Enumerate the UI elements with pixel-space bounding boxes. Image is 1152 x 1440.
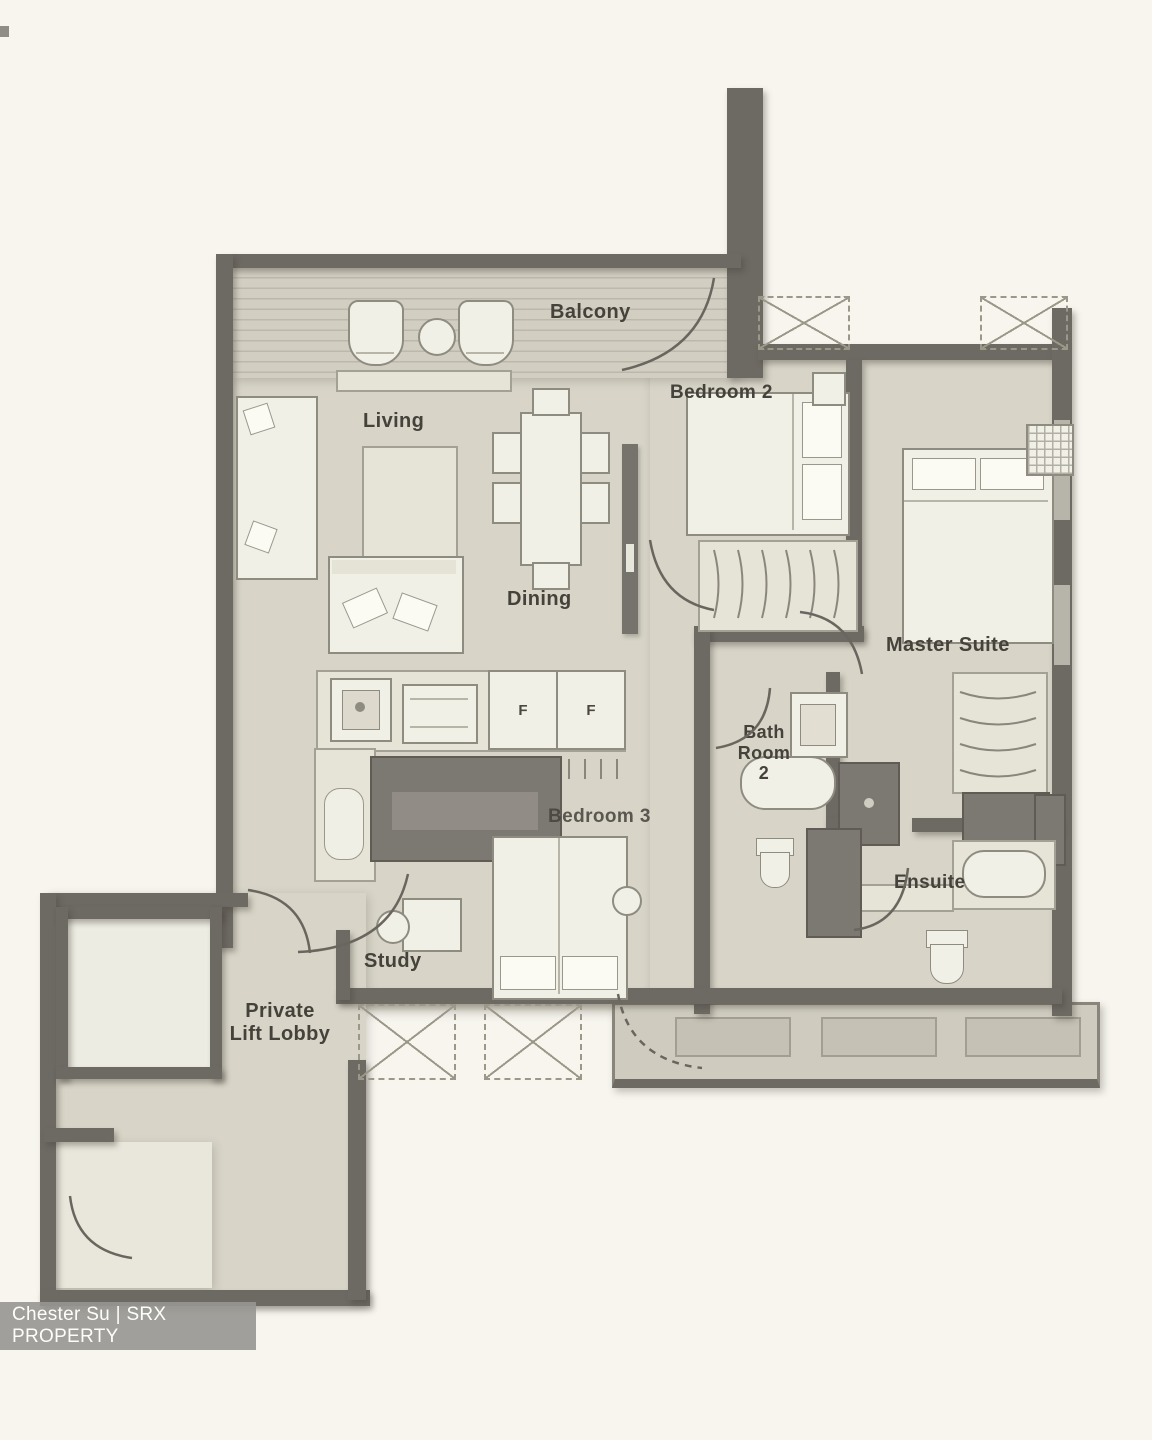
bath2-toilet	[756, 838, 794, 888]
wall-study-left	[336, 930, 350, 1000]
bedroom2-bed	[686, 392, 850, 536]
study-desk	[402, 898, 462, 952]
sofa-cushion	[392, 592, 437, 631]
bed-pillow	[912, 458, 976, 490]
toilet-bowl	[760, 852, 790, 888]
bed-pillow	[802, 402, 842, 458]
bedroom2-nightstand	[812, 372, 846, 406]
window-hatch-top-2	[980, 296, 1068, 350]
floor-lower-room	[56, 1142, 212, 1288]
watermark-text: Chester Su | SRX PROPERTY	[12, 1304, 256, 1348]
wall-fin-dining	[622, 444, 638, 634]
kitchen-sink	[330, 678, 392, 742]
sofa	[328, 556, 464, 654]
balcony-chair-1	[348, 300, 404, 366]
bed-pillow	[500, 956, 556, 990]
sink-tap	[355, 702, 365, 712]
bed-pillow	[802, 464, 842, 520]
bedroom3-lamp	[612, 886, 642, 916]
wall-left	[216, 254, 233, 948]
vanity-basin	[800, 704, 836, 746]
print-artifact	[0, 26, 9, 37]
fridge-label: F	[490, 672, 556, 748]
wall-lift-shaft-right	[210, 907, 222, 1079]
dining-chair-right-1	[580, 432, 610, 474]
window-hatch-bottom-2	[484, 1004, 582, 1080]
label-ensuite: Ensuite	[894, 872, 965, 894]
watermark-bar: Chester Su | SRX PROPERTY	[0, 1302, 256, 1350]
label-private-lift-lobby: Private Lift Lobby	[210, 1000, 350, 1046]
bottom-ledge	[612, 1002, 1100, 1088]
chair-seat-line	[356, 352, 394, 354]
wall-lobby-mid	[44, 1128, 114, 1142]
ensuite-toilet	[926, 930, 970, 986]
master-wardrobe	[952, 672, 1048, 794]
label-bedroom3: Bedroom 3	[548, 806, 651, 828]
bedroom2-wardrobe	[698, 540, 858, 632]
fridge-label: F	[558, 672, 624, 748]
wall-lift-shaft-left	[56, 907, 68, 1079]
ensuite-wall-block	[806, 828, 862, 938]
balcony-round-table	[418, 318, 456, 356]
label-balcony: Balcony	[550, 301, 631, 324]
sliding-door-track	[336, 370, 512, 392]
label-dining: Dining	[507, 588, 572, 611]
floor-plan-page: { "plan": { "rooms": { "balcony": "Balco…	[0, 0, 1152, 1440]
label-master-suite: Master Suite	[886, 634, 1010, 657]
dining-chair-left-1	[492, 432, 522, 474]
dining-chair-left-2	[492, 482, 522, 524]
stove-line	[410, 698, 468, 700]
bed-pillow	[562, 956, 618, 990]
dining-chair-top	[532, 388, 570, 416]
wall-lobby-top	[48, 893, 248, 907]
ledge-slot	[675, 1017, 791, 1057]
wall-corridor-left	[694, 626, 710, 1014]
label-living: Living	[363, 410, 424, 433]
dining-chair-bottom	[532, 562, 570, 590]
dining-chair-right-2	[580, 482, 610, 524]
label-bedroom2: Bedroom 2	[670, 382, 773, 404]
wall-bottom-main	[336, 988, 1062, 1004]
stove-line	[410, 726, 468, 728]
armchair	[362, 446, 458, 562]
ledge-slot	[821, 1017, 937, 1057]
cabinet-inset	[324, 788, 364, 860]
fridge-door-right: F	[558, 672, 624, 748]
hanger-rail	[700, 542, 852, 626]
master-bed	[902, 448, 1054, 644]
fin-slot	[626, 544, 634, 572]
ensuite-tub	[962, 850, 1046, 898]
label-study: Study	[364, 950, 422, 973]
sofa-cushion	[342, 587, 388, 628]
chair-seat-line	[466, 352, 504, 354]
wall-lobby-right	[348, 1060, 366, 1300]
lift-shaft-interior	[68, 919, 210, 1067]
island-inset	[392, 792, 538, 830]
wall-lift-shaft-bottom	[56, 1067, 222, 1079]
window-right-2	[1054, 585, 1070, 665]
toilet-bowl	[930, 944, 964, 984]
wall-lobby-left	[40, 893, 56, 1306]
fridge-door-left: F	[490, 672, 558, 748]
daybed	[236, 396, 318, 580]
balcony-chair-2	[458, 300, 514, 366]
window-hatch-bottom-1	[358, 1004, 456, 1080]
bed-divider	[792, 394, 794, 530]
hanger-rail	[954, 674, 1042, 788]
kitchen-stove	[402, 684, 478, 744]
daybed-cushion	[244, 520, 277, 553]
shower-drain	[864, 798, 874, 808]
sofa-back	[332, 560, 456, 574]
wall-balcony-top	[229, 254, 741, 268]
fridge-unit: F F	[488, 670, 626, 750]
bed-divider	[904, 500, 1048, 502]
bed-divider	[558, 838, 560, 994]
study-chair	[376, 910, 410, 944]
master-ac-panel	[1026, 424, 1074, 476]
kitchen-tall-cabinet	[314, 748, 376, 882]
window-hatch-top-1	[758, 296, 850, 350]
bedroom3-bed	[492, 836, 628, 1000]
dining-table	[520, 412, 582, 566]
wall-lift-shaft-top	[56, 907, 222, 919]
label-bath-room-2: Bath Room 2	[728, 722, 800, 784]
ledge-slot	[965, 1017, 1081, 1057]
daybed-cushion	[243, 403, 276, 436]
